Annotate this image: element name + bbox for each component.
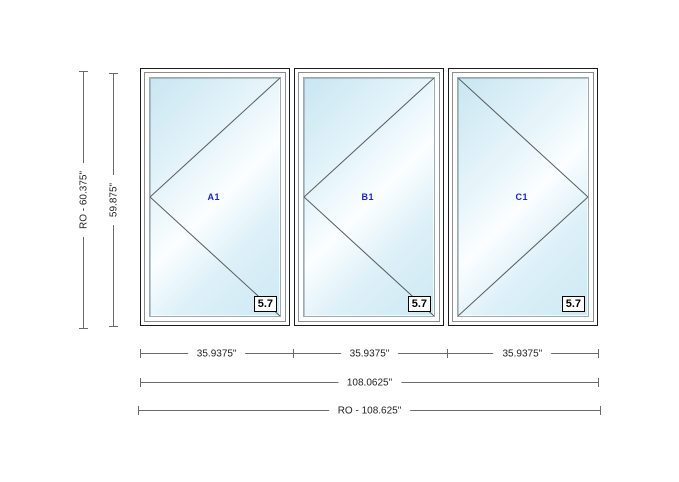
dimension-tick <box>109 326 118 327</box>
performance-badge: 5.7 <box>254 296 277 312</box>
performance-badge: 5.7 <box>562 296 585 312</box>
dimension-tick <box>138 406 139 415</box>
panel-label: C1 <box>515 192 528 202</box>
panel-sash: A1 5.7 <box>144 72 286 322</box>
window-drawing-canvas: RO - 60.375" 59.875" A1 5.7 <box>0 0 679 482</box>
window-assembly: A1 5.7 B1 5.7 <box>140 68 598 326</box>
glass-pane: B1 5.7 <box>303 77 435 317</box>
dimension-label-panel-c-width: 35.9375" <box>493 348 551 359</box>
dimension-tick <box>293 349 294 358</box>
dimension-label-vertical-ro: RO - 60.375" <box>78 163 89 237</box>
glass-pane: C1 5.7 <box>457 77 589 317</box>
panel-label: A1 <box>207 192 220 202</box>
vertical-dimension-frame-height: 59.875" <box>109 73 118 327</box>
glass-pane: A1 5.7 <box>149 77 281 317</box>
panel-width-dimension-row: 35.9375" 35.9375" 35.9375" <box>140 349 599 358</box>
dimension-tick <box>598 378 599 387</box>
overall-width-dimension: 108.0625" <box>140 378 599 387</box>
dimension-tick <box>600 406 601 415</box>
rough-opening-width-dimension: RO - 108.625" <box>138 406 601 415</box>
panel-sash: C1 5.7 <box>452 72 594 322</box>
vertical-dimension-rough-opening: RO - 60.375" <box>79 71 88 329</box>
dimension-tick <box>79 328 88 329</box>
window-panel-c1: C1 5.7 <box>448 68 598 326</box>
dimension-tick <box>447 349 448 358</box>
dimension-tick <box>140 378 141 387</box>
dimension-label-rough-opening-width: RO - 108.625" <box>329 405 411 416</box>
window-panel-a1: A1 5.7 <box>140 68 290 326</box>
dimension-label-vertical-frame: 59.875" <box>108 175 119 225</box>
dimension-label-overall-width: 108.0625" <box>338 377 401 388</box>
dimension-label-panel-a-width: 35.9375" <box>188 348 246 359</box>
window-panel-b1: B1 5.7 <box>294 68 444 326</box>
panel-sash: B1 5.7 <box>298 72 440 322</box>
dimension-label-panel-b-width: 35.9375" <box>341 348 399 359</box>
dimension-tick <box>140 349 141 358</box>
panel-label: B1 <box>361 192 374 202</box>
dimension-tick <box>598 349 599 358</box>
performance-badge: 5.7 <box>408 296 431 312</box>
